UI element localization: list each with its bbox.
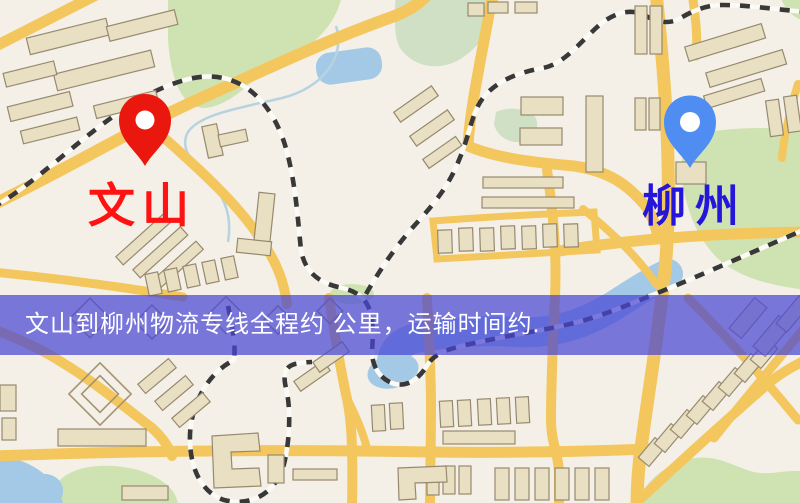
origin-city-label: 文山 <box>88 179 196 232</box>
route-info-banner: 文山到柳州物流专线全程约 公里，运输时间约. <box>0 295 800 355</box>
destination-city-label: 柳州 <box>642 182 748 231</box>
origin-pin-hole <box>136 111 155 130</box>
destination-pin-hole <box>680 112 700 132</box>
route-info-text: 文山到柳州物流专线全程约 公里，运输时间约. <box>25 295 800 355</box>
map-canvas: 文山 柳州 文山到柳州物流专线全程约 公里，运输时间约. <box>0 0 800 503</box>
map-graphic: 文山 柳州 <box>0 0 800 503</box>
